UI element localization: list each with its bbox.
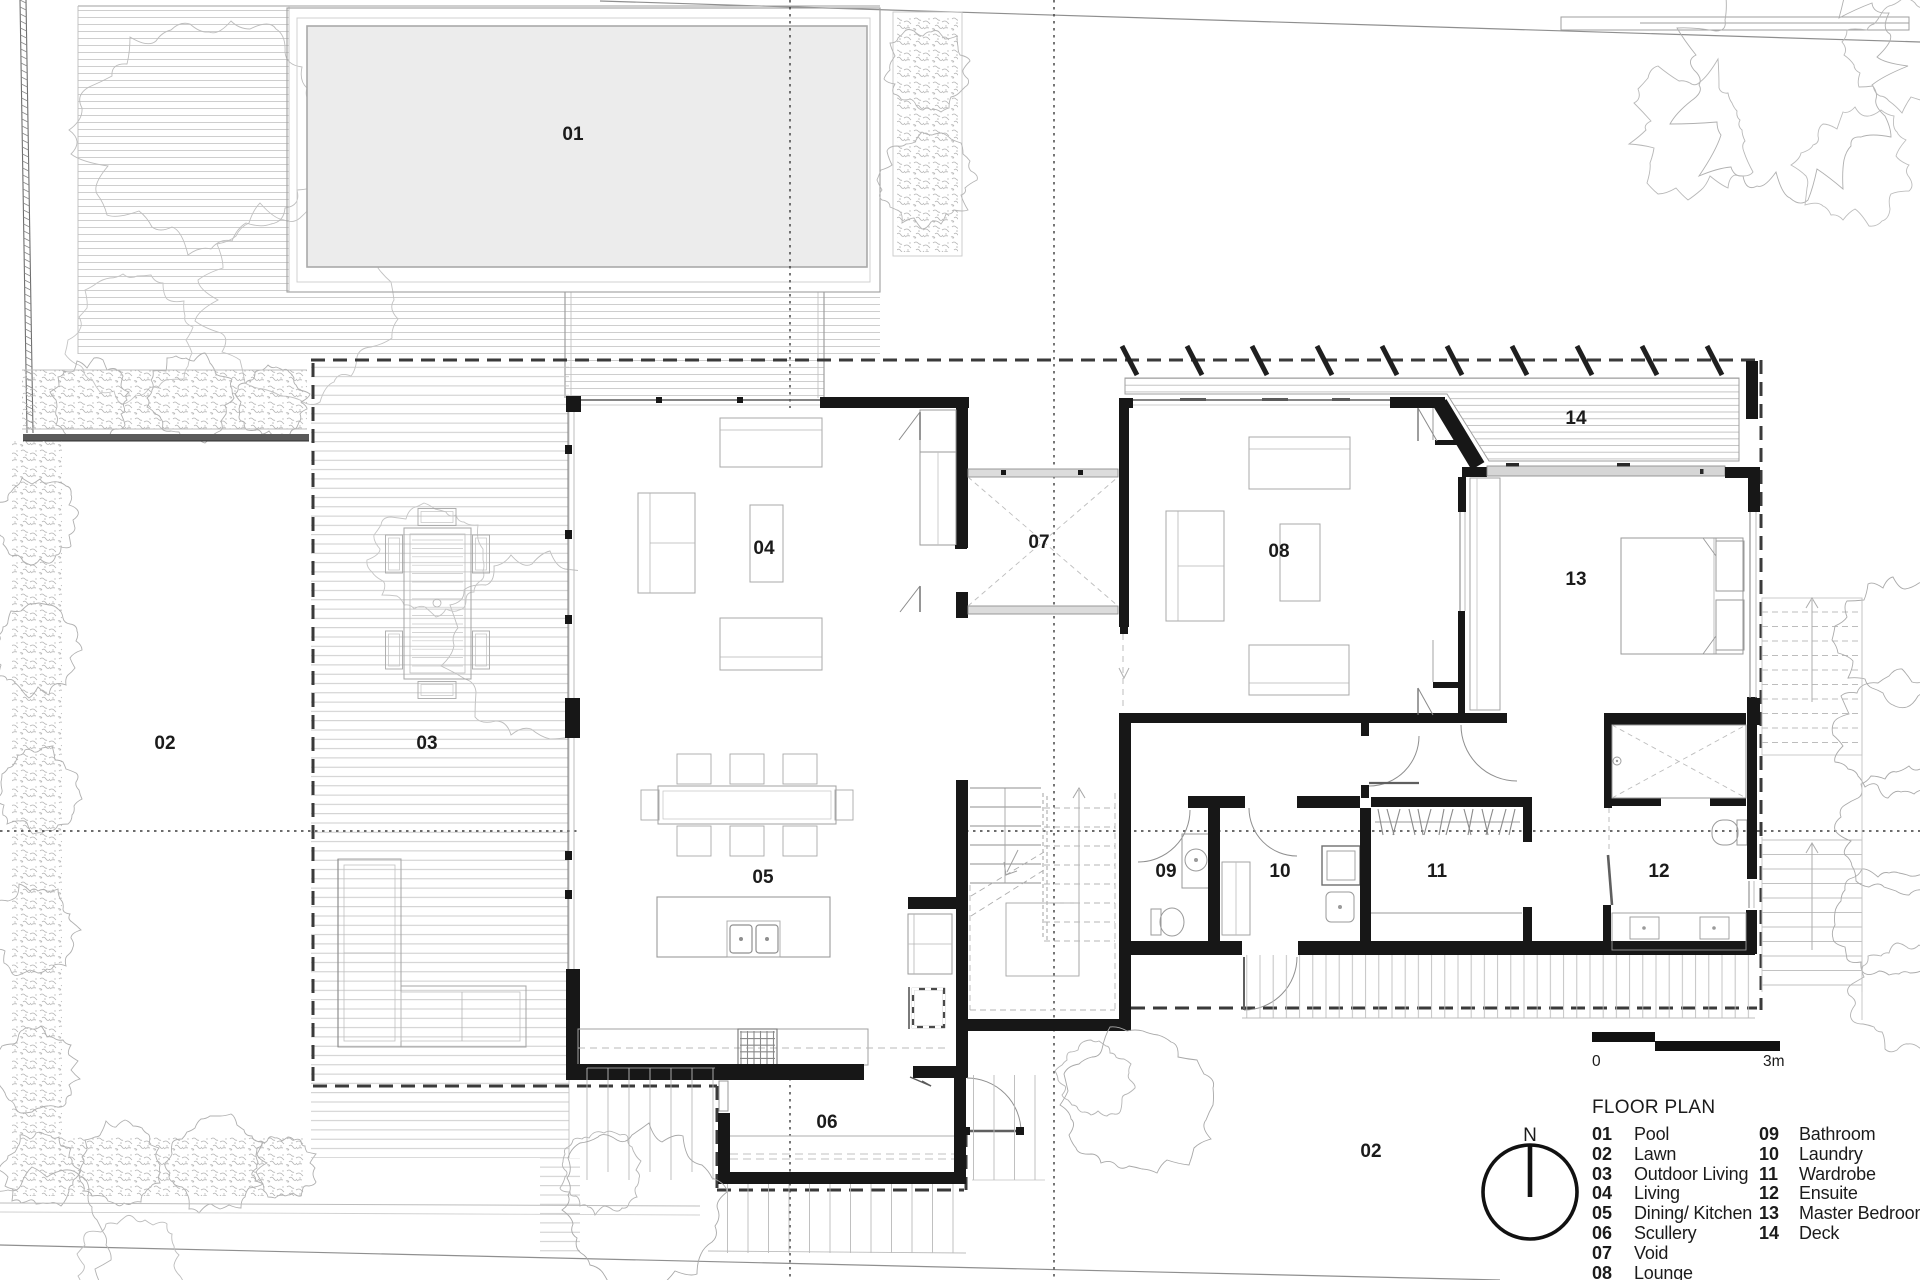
svg-text:03: 03 xyxy=(1592,1164,1612,1184)
svg-text:14: 14 xyxy=(1565,408,1587,429)
svg-text:13: 13 xyxy=(1759,1203,1779,1223)
svg-text:03: 03 xyxy=(416,733,437,754)
svg-text:Ensuite: Ensuite xyxy=(1799,1183,1858,1203)
svg-text:3m: 3m xyxy=(1763,1053,1785,1070)
svg-text:Deck: Deck xyxy=(1799,1223,1840,1243)
svg-text:FLOOR PLAN: FLOOR PLAN xyxy=(1592,1097,1715,1118)
svg-text:04: 04 xyxy=(753,538,775,559)
svg-text:08: 08 xyxy=(1592,1263,1612,1280)
svg-text:N: N xyxy=(1523,1125,1537,1146)
svg-text:Scullery: Scullery xyxy=(1634,1223,1697,1243)
svg-text:Bathroom: Bathroom xyxy=(1799,1124,1875,1144)
svg-text:02: 02 xyxy=(1592,1144,1612,1164)
svg-text:Lounge: Lounge xyxy=(1634,1263,1693,1280)
svg-text:Wardrobe: Wardrobe xyxy=(1799,1164,1876,1184)
svg-text:14: 14 xyxy=(1759,1223,1779,1243)
svg-text:Void: Void xyxy=(1634,1243,1668,1263)
svg-text:08: 08 xyxy=(1268,541,1289,562)
svg-text:0: 0 xyxy=(1592,1053,1601,1070)
svg-text:09: 09 xyxy=(1155,861,1176,882)
svg-text:07: 07 xyxy=(1592,1243,1612,1263)
svg-text:12: 12 xyxy=(1648,861,1669,882)
svg-text:07: 07 xyxy=(1028,532,1049,553)
svg-text:06: 06 xyxy=(816,1112,837,1133)
svg-text:05: 05 xyxy=(1592,1203,1612,1223)
svg-text:09: 09 xyxy=(1759,1124,1779,1144)
svg-text:Outdoor Living: Outdoor Living xyxy=(1634,1164,1748,1184)
svg-text:06: 06 xyxy=(1592,1223,1612,1243)
svg-text:11: 11 xyxy=(1427,861,1448,882)
svg-text:Master Bedroom: Master Bedroom xyxy=(1799,1203,1920,1223)
svg-text:02: 02 xyxy=(1360,1141,1381,1162)
svg-text:Laundry: Laundry xyxy=(1799,1144,1863,1164)
svg-text:05: 05 xyxy=(752,867,774,888)
svg-text:11: 11 xyxy=(1759,1164,1778,1184)
svg-text:01: 01 xyxy=(562,124,584,145)
svg-text:04: 04 xyxy=(1592,1183,1612,1203)
svg-text:10: 10 xyxy=(1269,861,1290,882)
svg-text:02: 02 xyxy=(154,733,175,754)
svg-text:Lawn: Lawn xyxy=(1634,1144,1676,1164)
svg-text:Living: Living xyxy=(1634,1183,1680,1203)
svg-text:01: 01 xyxy=(1592,1124,1612,1144)
svg-text:Dining/ Kitchen: Dining/ Kitchen xyxy=(1634,1203,1752,1223)
svg-text:Pool: Pool xyxy=(1634,1124,1669,1144)
svg-text:10: 10 xyxy=(1759,1144,1779,1164)
svg-text:13: 13 xyxy=(1565,569,1586,590)
svg-text:12: 12 xyxy=(1759,1183,1779,1203)
